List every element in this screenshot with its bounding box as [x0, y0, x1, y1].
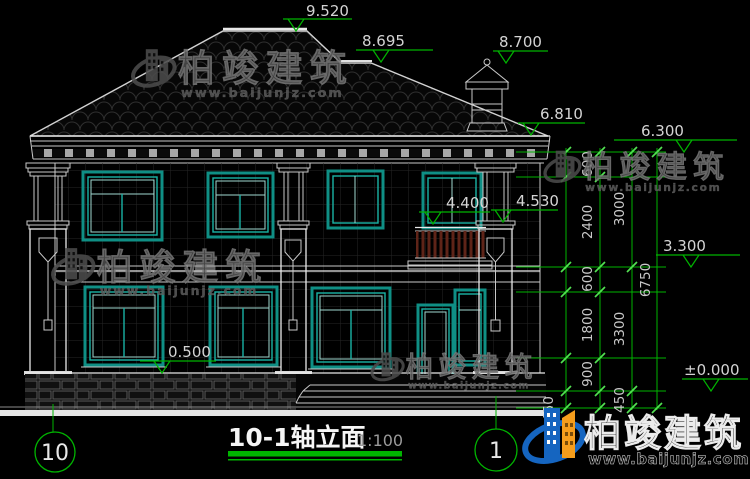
dim-450-b: 450 [612, 387, 628, 413]
balcony-railing [416, 231, 485, 258]
drawing-title: 10-1轴立面 [228, 423, 366, 452]
dim-6750: 6750 [638, 263, 654, 297]
elev-balcony-rail: 4.400 [446, 194, 489, 212]
elev-ridge: 9.520 [306, 2, 349, 20]
elev-roof-break: 8.695 [362, 32, 405, 50]
dim-3300: 3300 [612, 312, 628, 346]
elev-main-eave: 6.300 [641, 122, 684, 140]
brand-logo: 柏竣建筑 www.baijunjz.com [520, 408, 749, 468]
eave-cornice [30, 136, 550, 163]
elev-base-top: 0.500 [168, 343, 211, 361]
pilaster-ornament [39, 238, 57, 262]
axis-right-number: 1 [489, 439, 503, 464]
logo-url: www.baijunjz.com [588, 450, 749, 468]
axis-left-number: 10 [41, 441, 69, 466]
elev-second-floor: 3.300 [663, 237, 706, 255]
elev-chimney-top: 8.700 [499, 33, 542, 51]
dim-2400: 2400 [580, 205, 596, 239]
logo-building-blue-icon [544, 408, 560, 458]
logo-name: 柏竣建筑 [584, 412, 744, 455]
drawing-scale: 1:100 [357, 431, 403, 450]
dim-1800: 1800 [580, 308, 596, 342]
title-underline-thick [228, 451, 402, 457]
title-underline-thin [228, 459, 402, 461]
dim-3000: 3000 [612, 192, 628, 226]
dim-900: 900 [580, 361, 596, 387]
dim-600-b: 600 [580, 266, 596, 292]
elev-right-eave: 6.810 [540, 105, 583, 123]
elev-ground: ±0.000 [684, 361, 740, 379]
title-block: 10-1轴立面 1:100 [228, 423, 403, 461]
elev-column-capital: 4.530 [516, 192, 559, 210]
cad-elevation-drawing: 柏竣建筑 www.baijunjz.com [0, 0, 750, 479]
